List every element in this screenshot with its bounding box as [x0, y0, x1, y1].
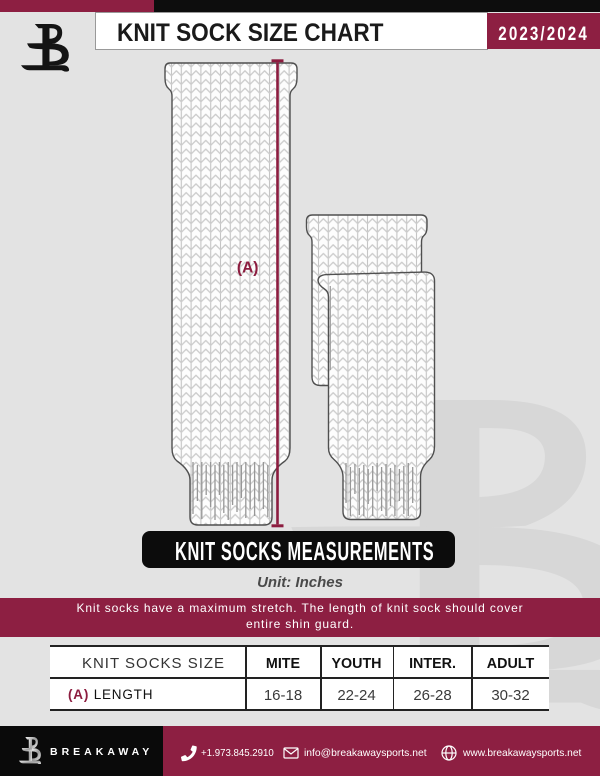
svg-text:(A): (A): [237, 260, 259, 277]
